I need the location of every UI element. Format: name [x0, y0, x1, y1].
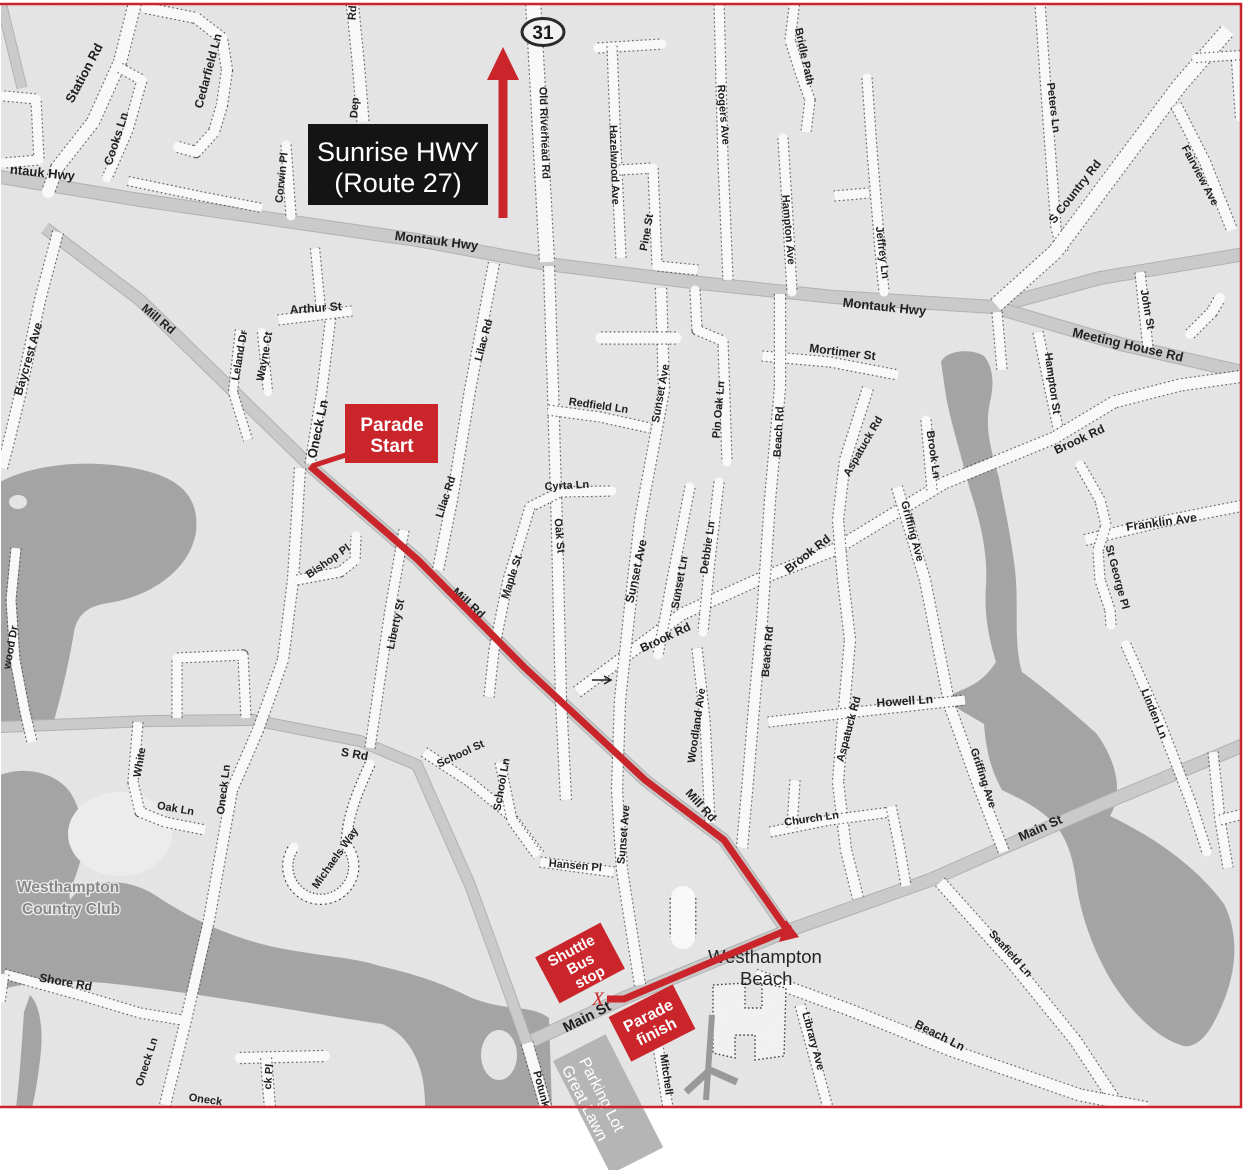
svg-text:(Route 27): (Route 27)	[334, 168, 462, 198]
svg-text:Start: Start	[370, 436, 414, 457]
svg-text:X: X	[591, 989, 605, 1010]
svg-text:Parade: Parade	[360, 415, 423, 436]
svg-text:31: 31	[532, 23, 554, 44]
svg-text:Sunrise HWY: Sunrise HWY	[317, 137, 479, 167]
